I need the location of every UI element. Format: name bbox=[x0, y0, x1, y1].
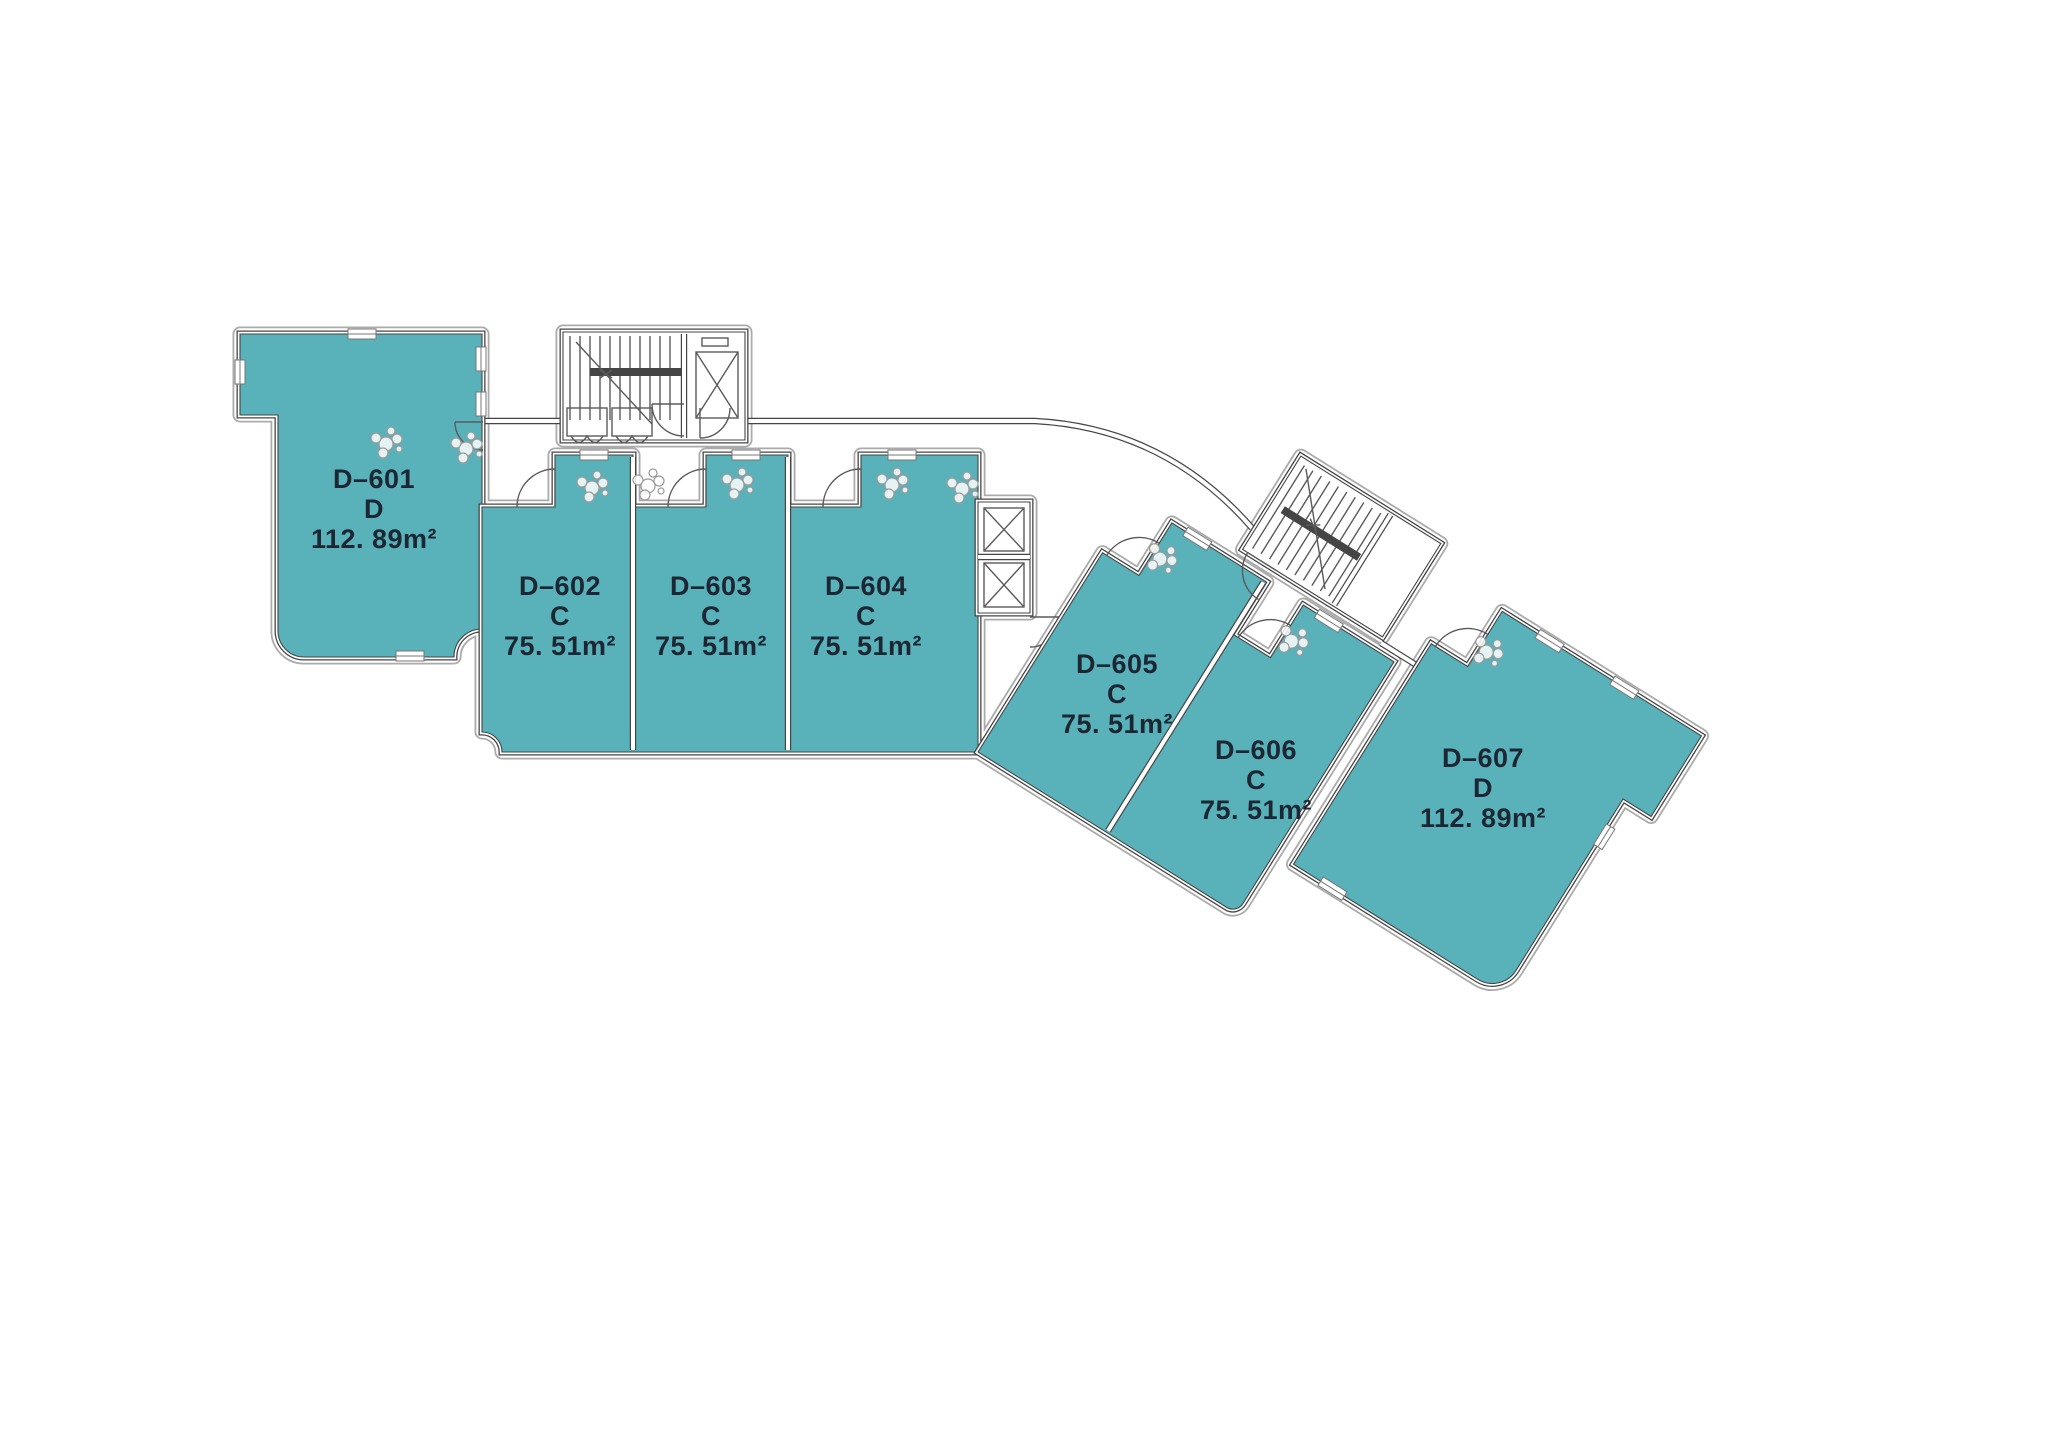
unit-label-d601: D–601 D 112. 89m² bbox=[311, 464, 437, 554]
unit-id: D–601 bbox=[311, 464, 437, 494]
unit-type: C bbox=[504, 601, 616, 631]
unit-label-d607: D–607 D 112. 89m² bbox=[1420, 743, 1546, 833]
unit-type: C bbox=[810, 601, 922, 631]
unit-type: C bbox=[1061, 679, 1173, 709]
unit-type: D bbox=[311, 494, 437, 524]
unit-id: D–606 bbox=[1200, 735, 1312, 765]
unit-type: C bbox=[1200, 765, 1312, 795]
unit-id: D–607 bbox=[1420, 743, 1546, 773]
unit-label-d603: D–603 C 75. 51m² bbox=[655, 571, 767, 661]
unit-id: D–603 bbox=[655, 571, 767, 601]
unit-id: D–602 bbox=[504, 571, 616, 601]
stairwell-block-1 bbox=[563, 332, 745, 443]
unit-label-d602: D–602 C 75. 51m² bbox=[504, 571, 616, 661]
unit-id: D–605 bbox=[1061, 649, 1173, 679]
unit-area: 112. 89m² bbox=[311, 524, 437, 554]
unit-area: 75. 51m² bbox=[1061, 709, 1173, 739]
elevator-bank bbox=[978, 502, 1060, 647]
unit-area: 75. 51m² bbox=[655, 631, 767, 661]
unit-type: D bbox=[1420, 773, 1546, 803]
unit-id: D–604 bbox=[810, 571, 922, 601]
unit-area: 75. 51m² bbox=[810, 631, 922, 661]
unit-type: C bbox=[655, 601, 767, 631]
floorplan-canvas bbox=[0, 0, 2048, 1446]
unit-area: 75. 51m² bbox=[1200, 795, 1312, 825]
unit-area: 112. 89m² bbox=[1420, 803, 1546, 833]
unit-label-d604: D–604 C 75. 51m² bbox=[810, 571, 922, 661]
unit-label-d606: D–606 C 75. 51m² bbox=[1200, 735, 1312, 825]
unit-area: 75. 51m² bbox=[504, 631, 616, 661]
unit-label-d605: D–605 C 75. 51m² bbox=[1061, 649, 1173, 739]
floorplan-page: D–601 D 112. 89m² D–602 C 75. 51m² D–603… bbox=[0, 0, 2048, 1446]
